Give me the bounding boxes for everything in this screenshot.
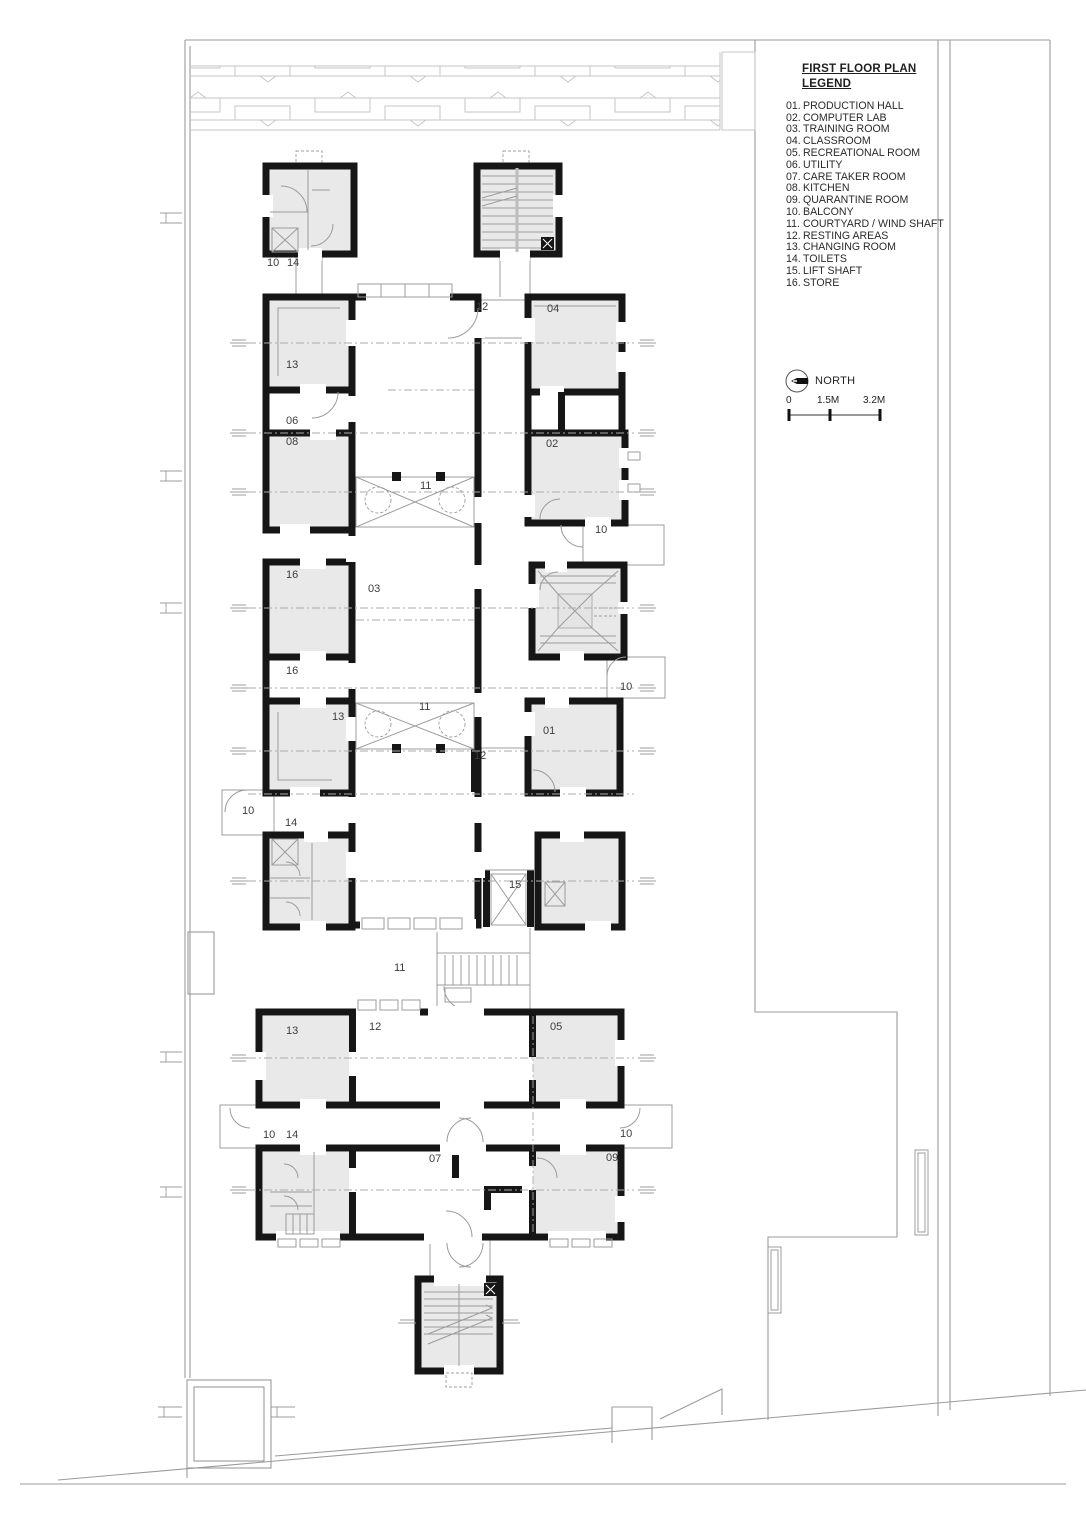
room-number-label: 13 <box>286 359 298 371</box>
scale-label: 0 <box>786 395 792 406</box>
room-16 <box>266 562 352 657</box>
courtyard-11-upper <box>356 472 474 527</box>
room-number-label: 14 <box>286 1129 298 1141</box>
external-stair <box>437 928 530 1011</box>
legend-item: 11.COURTYARD / WIND SHAFT <box>786 219 976 231</box>
room-number-label: 14 <box>285 817 297 829</box>
room-number-label: 10 <box>242 805 254 817</box>
north-label: NORTH <box>815 375 855 387</box>
room-01 <box>528 701 620 793</box>
legend-title-line1: FIRST FLOOR PLAN <box>802 62 976 77</box>
north-arrow-icon <box>783 366 813 396</box>
room-number-label: 14 <box>287 257 299 269</box>
scale-label: 3.2M <box>863 395 885 406</box>
room-number-label: 16 <box>286 569 298 581</box>
north-indicator: NORTH <box>783 366 855 396</box>
room-number-label: 02 <box>546 438 558 450</box>
room-number-label: 05 <box>550 1021 562 1033</box>
room-number-label: 11 <box>419 701 430 713</box>
room-number-label: 10 <box>263 1129 275 1141</box>
room-number-label: 12 <box>369 1021 381 1033</box>
room-number-label: 09 <box>606 1152 618 1164</box>
room-number-label: 16 <box>286 665 298 677</box>
room-number-label: 13 <box>286 1025 298 1037</box>
room-04 <box>528 297 622 392</box>
room-08 <box>266 433 352 530</box>
legend-item: 16.STORE <box>786 278 976 290</box>
scale-label: 1.5M <box>817 395 839 406</box>
scale-bar: 01.5M3.2M <box>786 395 906 425</box>
legend-item: 06.UTILITY <box>786 160 976 172</box>
block-toilets-top <box>266 166 354 254</box>
room-number-label: 07 <box>429 1153 441 1165</box>
legend-item: 01.PRODUCTION HALL <box>786 101 976 113</box>
room-number-label: 01 <box>543 725 555 737</box>
scale-bar-labels: 01.5M3.2M <box>786 395 906 407</box>
room-number-label: 11 <box>420 480 431 492</box>
room-number-label: 10 <box>595 524 607 536</box>
room-number-label: 13 <box>332 711 344 723</box>
room-13-upper <box>266 297 352 390</box>
courtyard-11-lower <box>356 703 474 753</box>
room-number-label: 03 <box>368 583 380 595</box>
room-number-label: 12 <box>474 750 486 762</box>
room-number-label: 08 <box>286 436 298 448</box>
legend-items: 01.PRODUCTION HALL02.COMPUTER LAB03.TRAI… <box>786 101 976 290</box>
room-number-label: 12 <box>476 301 488 313</box>
legend-title-line2: LEGEND <box>802 77 976 92</box>
room-number-label: 11 <box>394 962 405 974</box>
room-number-label: 06 <box>286 415 298 427</box>
scale-bar-graphic <box>786 408 906 422</box>
room-number-label: 10 <box>267 257 279 269</box>
room-number-label: 10 <box>620 681 632 693</box>
legend-panel: FIRST FLOOR PLAN LEGEND 01.PRODUCTION HA… <box>786 62 976 290</box>
floor-plan-sheet: { "legend": { "title_line1": "FIRST FLOO… <box>0 0 1086 1536</box>
room-number-label: 15 <box>509 879 521 891</box>
paving-band <box>190 52 755 130</box>
room-number-label: 04 <box>547 303 559 315</box>
room-number-label: 10 <box>620 1128 632 1140</box>
central-hall <box>352 297 478 925</box>
